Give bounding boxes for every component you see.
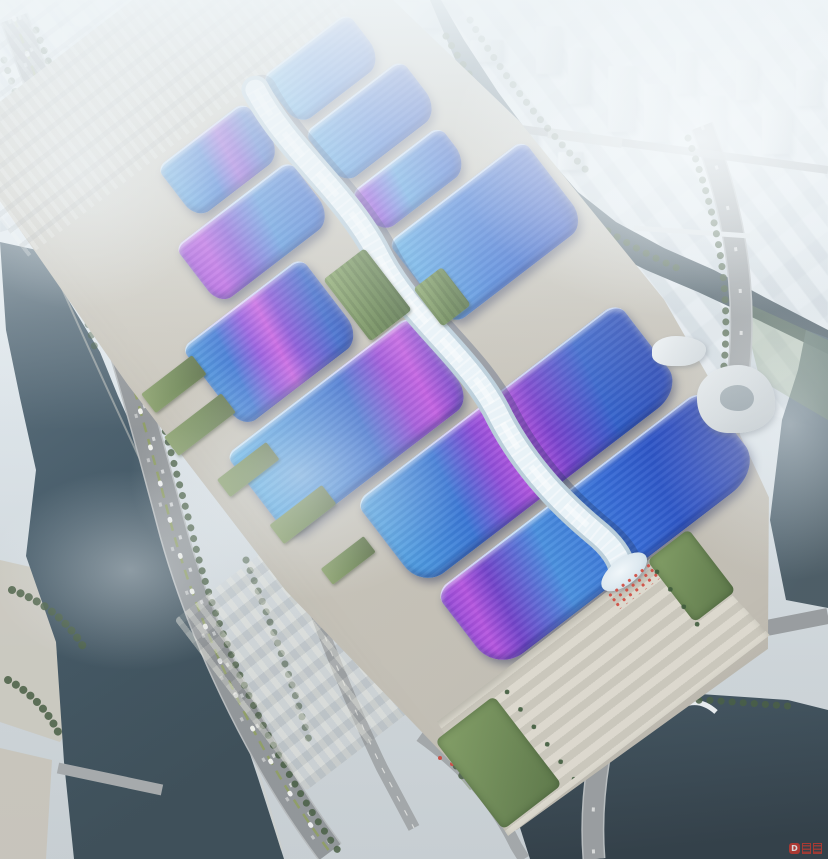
tree-cluster-park-2 — [8, 680, 60, 736]
watermark-badge: D — [789, 843, 800, 854]
city-building — [736, 60, 758, 100]
city-building — [700, 96, 726, 150]
park-southwest-lower — [0, 748, 52, 859]
river-bridge-south — [58, 768, 162, 790]
station-glass-atrium — [720, 385, 754, 411]
watermark-glyph — [802, 843, 811, 854]
watermark: D — [789, 843, 822, 854]
city-building — [676, 52, 696, 94]
river-quay-steps — [56, 600, 104, 664]
city-building — [762, 110, 792, 154]
exhibition-complex — [0, 0, 828, 859]
central-concourse-spine — [0, 0, 828, 859]
city-building — [796, 70, 822, 106]
watermark-glyph — [813, 843, 822, 854]
aerial-rendering: D — [0, 0, 828, 859]
park-southwest — [0, 560, 96, 742]
tree-cluster-park — [12, 590, 84, 648]
